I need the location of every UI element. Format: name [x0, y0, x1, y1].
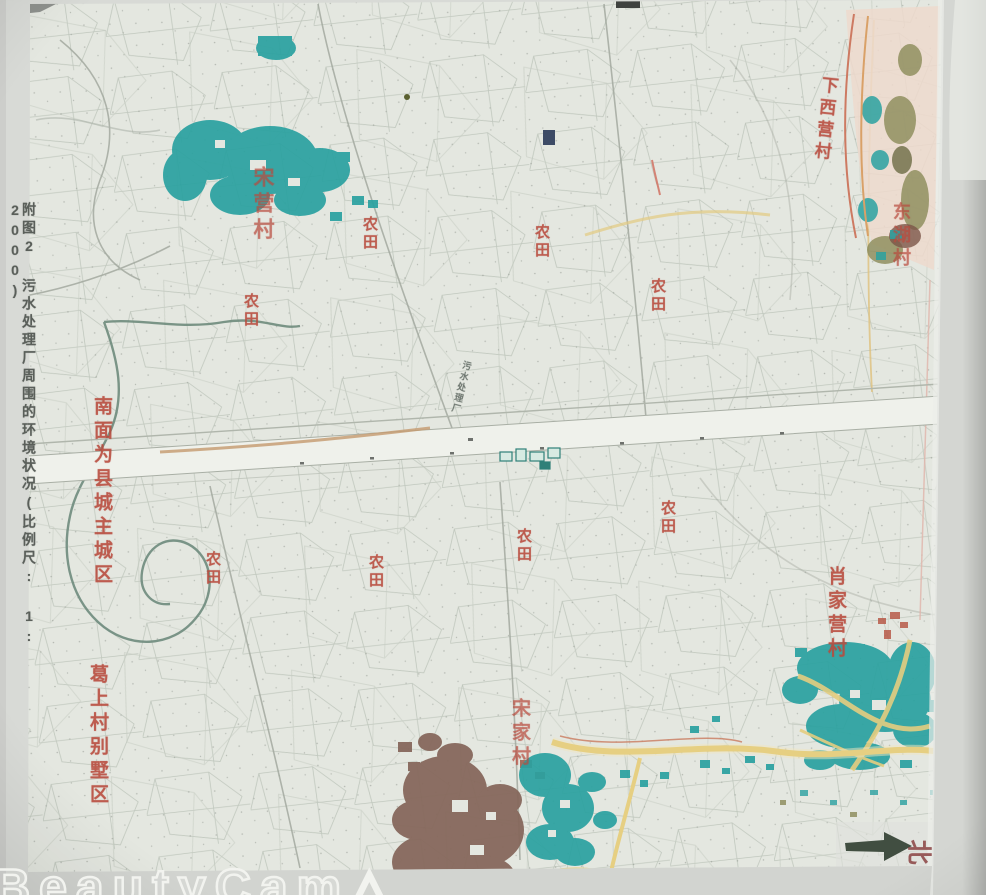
- label-village-bottom-center: 宋家村: [510, 698, 529, 770]
- label-village-right-mid: 肖家营村: [826, 566, 845, 662]
- label-farmland: 农田: [534, 224, 549, 260]
- label-farmland: 农田: [368, 554, 383, 590]
- photographed-map-page: 附图2 污水处理厂周围的环境状况(比例尺: 1: 2000) 南面为县城主城区 …: [0, 0, 986, 895]
- label-village-right-upper: 东湖村: [892, 202, 910, 271]
- photo-vignette: [0, 0, 986, 895]
- label-villa-district: 葛上村别墅区: [88, 664, 107, 808]
- watermark-text: BeautyCam: [0, 859, 350, 895]
- label-farmland: 农田: [650, 278, 665, 314]
- label-farmland: 农田: [660, 500, 675, 536]
- figure-caption: 附图2 污水处理厂周围的环境状况(比例尺: 1: 2000): [8, 202, 36, 682]
- map-image: [0, 0, 986, 895]
- label-farmland: 农田: [362, 216, 377, 252]
- watermark-logo-icon: △: [350, 859, 397, 895]
- label-village-top-left: 宋营村: [252, 166, 273, 244]
- label-farmland: 农田: [243, 293, 258, 329]
- label-farmland: 农田: [205, 551, 220, 587]
- north-label: 北: [903, 839, 939, 864]
- label-county-seat-note: 南面为县城主城区: [92, 396, 111, 588]
- label-farmland: 农田: [516, 528, 531, 564]
- camera-watermark: BeautyCam△: [0, 858, 398, 895]
